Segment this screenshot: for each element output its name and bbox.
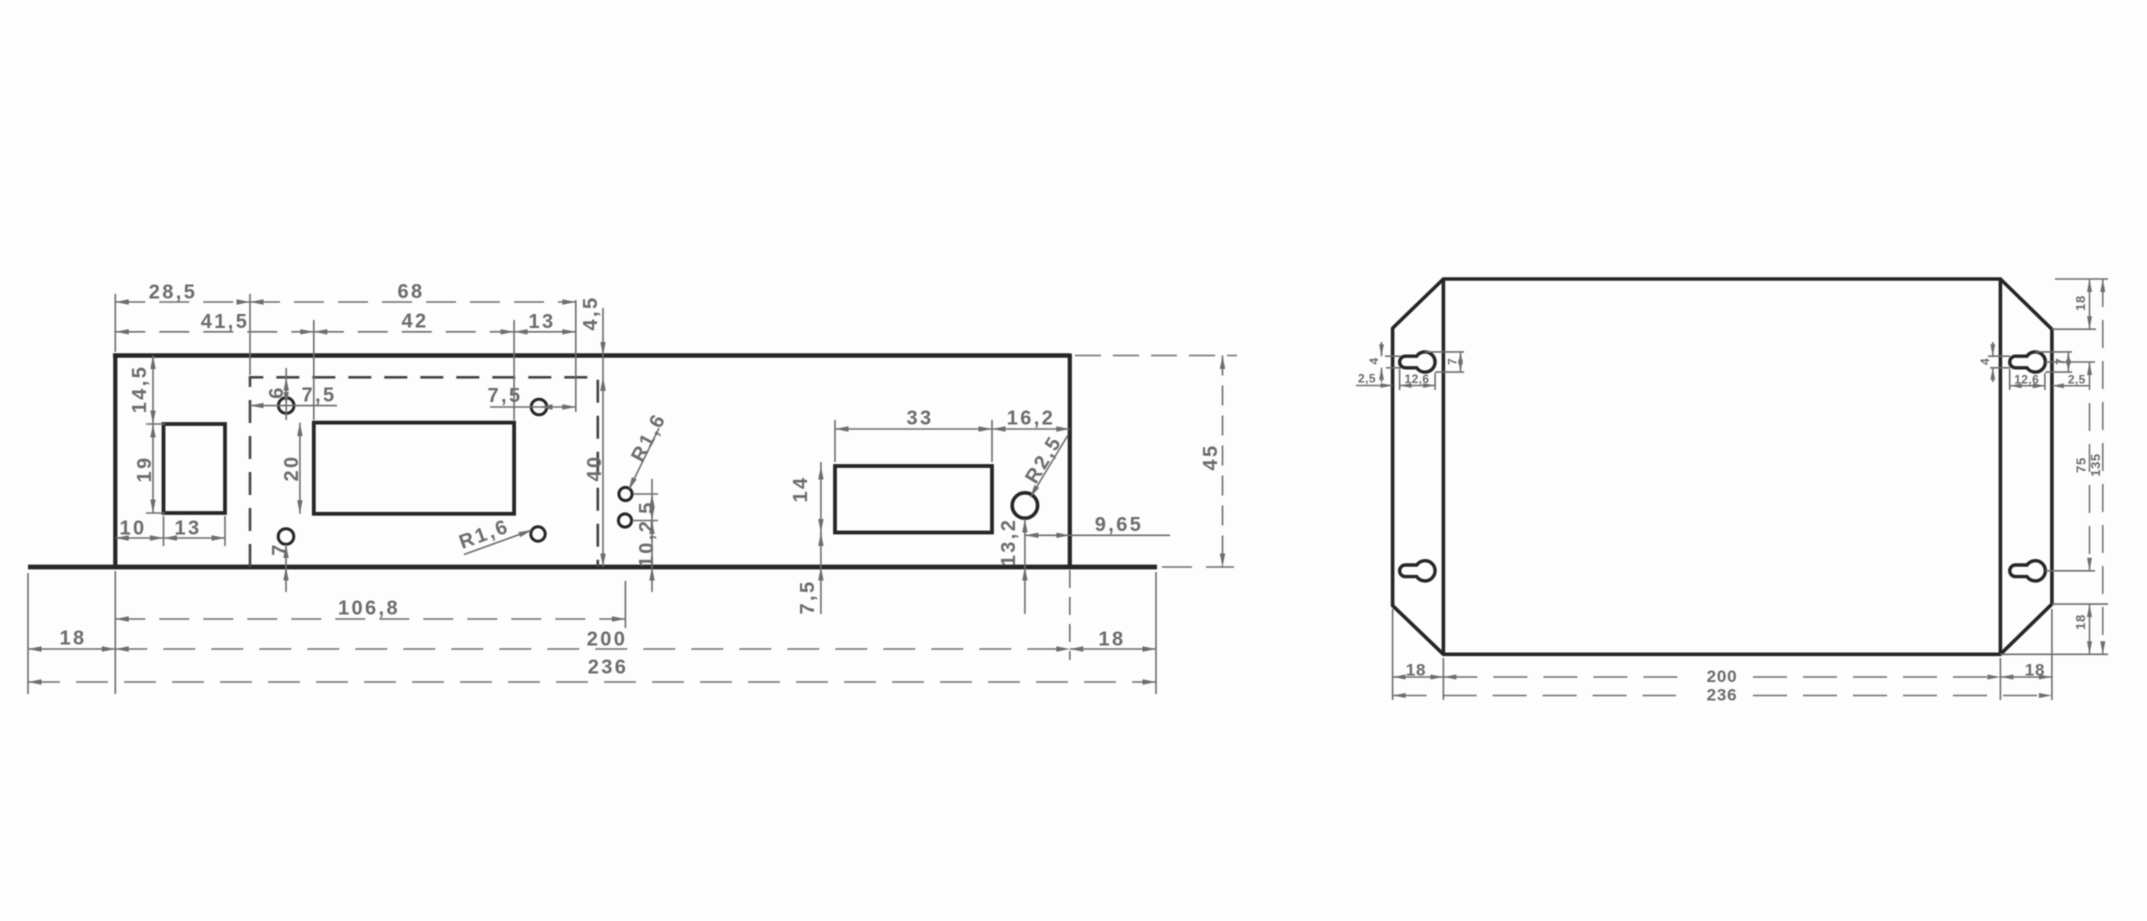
- svg-text:40: 40: [584, 454, 606, 481]
- svg-text:28,5: 28,5: [149, 282, 198, 304]
- svg-text:18: 18: [1406, 661, 1427, 680]
- svg-text:20: 20: [281, 454, 303, 481]
- svg-text:68: 68: [397, 281, 424, 303]
- svg-text:12,6: 12,6: [1405, 372, 1430, 386]
- svg-text:5: 5: [636, 500, 658, 514]
- svg-text:106,8: 106,8: [338, 598, 400, 620]
- svg-text:13: 13: [528, 311, 555, 333]
- svg-text:18: 18: [2073, 614, 2088, 630]
- svg-text:18: 18: [2025, 661, 2046, 680]
- svg-text:4: 4: [1367, 357, 1381, 364]
- svg-text:200: 200: [587, 629, 628, 651]
- svg-text:18: 18: [2073, 295, 2088, 311]
- svg-text:10: 10: [119, 518, 146, 540]
- svg-text:14,5: 14,5: [129, 365, 151, 414]
- svg-text:75: 75: [2074, 457, 2089, 473]
- svg-text:33: 33: [906, 408, 933, 430]
- svg-text:13: 13: [174, 518, 201, 540]
- svg-text:6: 6: [266, 385, 288, 399]
- svg-text:19: 19: [134, 455, 156, 482]
- svg-text:R1,6: R1,6: [456, 515, 512, 553]
- svg-text:135: 135: [2088, 453, 2103, 477]
- svg-text:2,5: 2,5: [2068, 372, 2086, 386]
- svg-text:236: 236: [1707, 686, 1738, 705]
- svg-text:10,2: 10,2: [636, 519, 658, 568]
- svg-text:7: 7: [269, 542, 291, 556]
- svg-text:18: 18: [1098, 629, 1125, 651]
- svg-text:16,2: 16,2: [1007, 408, 1056, 430]
- svg-text:7: 7: [1445, 358, 1459, 365]
- svg-text:45: 45: [1200, 443, 1222, 470]
- svg-text:200: 200: [1707, 667, 1738, 686]
- svg-text:18: 18: [59, 628, 86, 650]
- svg-text:2,5: 2,5: [1358, 371, 1376, 385]
- svg-text:7,5: 7,5: [797, 579, 819, 614]
- svg-text:41,5: 41,5: [201, 311, 250, 333]
- svg-text:4,5: 4,5: [580, 295, 602, 330]
- svg-text:14: 14: [790, 475, 812, 502]
- svg-text:236: 236: [588, 657, 629, 679]
- svg-text:R1,6: R1,6: [627, 410, 671, 466]
- svg-text:13,2: 13,2: [998, 518, 1020, 567]
- svg-text:7,5: 7,5: [487, 385, 522, 407]
- svg-text:4: 4: [1978, 358, 1992, 365]
- svg-text:42: 42: [401, 311, 428, 333]
- svg-text:9,65: 9,65: [1095, 514, 1144, 536]
- svg-text:7,5: 7,5: [301, 385, 336, 407]
- svg-text:R2,5: R2,5: [1021, 432, 1067, 488]
